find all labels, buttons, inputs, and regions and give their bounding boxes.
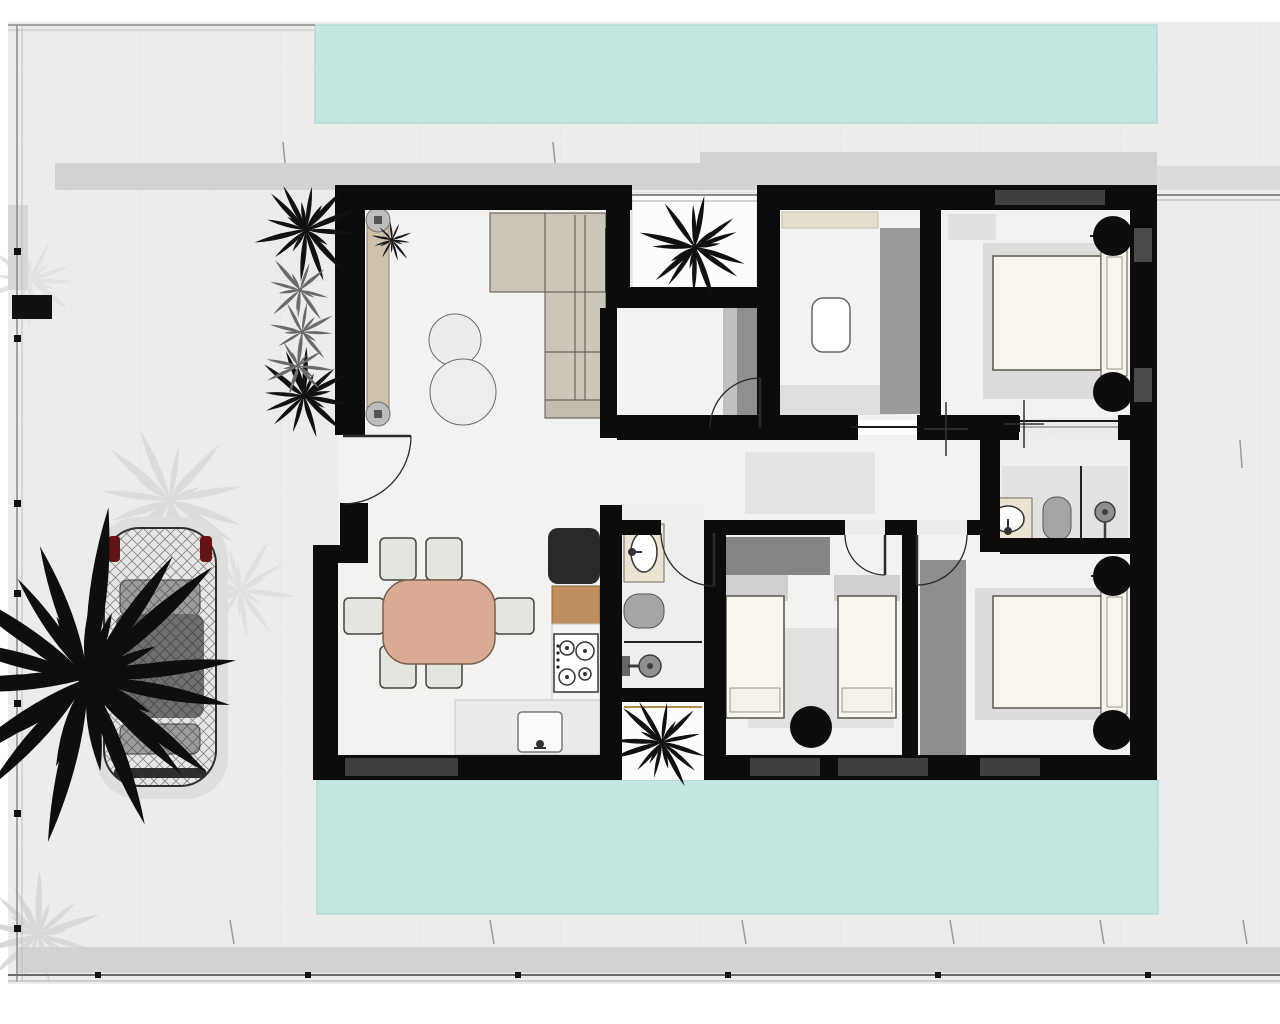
floor-plan-layers xyxy=(0,22,1280,985)
fence-post xyxy=(14,810,21,817)
twin-wardrobe xyxy=(726,537,830,575)
twin-bed-2-foot xyxy=(842,688,892,712)
laundry-shadow xyxy=(765,385,895,415)
fridge xyxy=(548,528,600,584)
stove-knob xyxy=(556,651,559,654)
burner-core xyxy=(583,649,587,653)
pool-top xyxy=(315,25,1157,123)
wall-corridor-top-b xyxy=(917,415,1019,440)
fence-post xyxy=(14,590,21,597)
window-east-b xyxy=(1134,368,1152,402)
wall-bedrooms-top-d xyxy=(967,520,980,535)
nightstand xyxy=(1093,372,1133,412)
burner-core xyxy=(565,646,569,650)
window-master-south xyxy=(980,758,1040,776)
wall-living-hall-lower xyxy=(600,308,617,438)
dining-table xyxy=(383,580,495,664)
wall-living-hall-upper xyxy=(606,210,630,308)
coffee-table-small xyxy=(429,314,481,366)
wall-courtyard-right xyxy=(757,210,780,290)
wall-ensuite-bottom xyxy=(1000,538,1130,554)
sofa-chaise xyxy=(490,213,545,292)
fence-post xyxy=(14,248,21,255)
nightstand xyxy=(1093,556,1133,596)
palm-shadow-bottom-left-trunk xyxy=(34,931,42,939)
console-knob-bottom-core xyxy=(374,410,382,418)
fence-post xyxy=(725,972,731,978)
nightstand xyxy=(790,706,832,748)
master-bed xyxy=(993,596,1101,708)
fence-post xyxy=(14,335,21,342)
wall-bathroom-left xyxy=(600,505,622,702)
washing-machine xyxy=(812,298,850,352)
wall-twin-master xyxy=(902,535,918,755)
dining-chair xyxy=(380,538,416,580)
master-headboard-inner xyxy=(1107,597,1122,707)
wall-west-upper xyxy=(335,210,365,435)
wall-east xyxy=(1130,210,1157,780)
wall-corridor-top-a xyxy=(617,415,858,440)
dining-chair xyxy=(494,598,534,634)
palm-niche-trunk xyxy=(659,739,665,745)
window-twin-south-a xyxy=(750,758,820,776)
wall-west-lower xyxy=(313,560,338,780)
stove-knob xyxy=(556,658,559,661)
window-bedroom1-top xyxy=(995,190,1105,205)
terrace-left-patch xyxy=(8,205,28,290)
lounger-plant-trunk xyxy=(298,288,303,293)
wall-ensuite-left xyxy=(980,440,1000,552)
wall-bedrooms-top-c xyxy=(885,520,917,535)
fence-post xyxy=(515,972,521,978)
coffee-table-large xyxy=(430,359,496,425)
wall-top-west xyxy=(335,185,632,210)
bathroom-faucet xyxy=(628,548,636,556)
fence-post xyxy=(305,972,311,978)
palm-shadow-drive-trunk xyxy=(237,587,244,594)
bedroom1-bed xyxy=(993,256,1101,370)
palm-shadow-carport-trunk xyxy=(166,496,175,505)
corridor-shadow xyxy=(745,452,875,514)
ensuite-faucet xyxy=(1004,527,1012,535)
stove-knob xyxy=(556,665,559,668)
console-sideboard xyxy=(367,226,389,408)
console-plant-trunk xyxy=(390,238,394,242)
burner-core xyxy=(583,672,587,676)
laundry-counter xyxy=(880,228,920,414)
dining-chair xyxy=(426,538,462,580)
lounger-plant-trunk xyxy=(300,330,305,335)
sofa-armrest xyxy=(545,400,606,418)
sliding-rail-block xyxy=(1118,416,1126,432)
twin-bed-1-foot xyxy=(730,688,780,712)
palm-west-bottom-trunk xyxy=(301,393,307,399)
wall-bedrooms-top-b xyxy=(714,520,845,535)
living-room-floor-west xyxy=(338,430,370,755)
palm-courtyard-trunk xyxy=(692,244,699,251)
fence-post xyxy=(14,500,21,507)
wall-laundry-right xyxy=(920,210,941,438)
fence-post xyxy=(935,972,941,978)
bedroom1-headboard-inner xyxy=(1107,257,1122,369)
terrace-top-right xyxy=(700,152,1157,190)
fence-post xyxy=(14,700,21,707)
window-dining-south xyxy=(345,758,458,776)
floor-plan-page xyxy=(0,0,1280,1024)
sink-faucet xyxy=(536,740,544,748)
fence-post xyxy=(95,972,101,978)
master-wardrobe xyxy=(920,560,966,756)
lounger-plant-trunk xyxy=(296,364,300,368)
burner-core xyxy=(565,675,569,679)
fence-post xyxy=(1145,972,1151,978)
cutting-board xyxy=(552,586,600,624)
window-east-a xyxy=(1134,228,1152,262)
floor-plan-svg xyxy=(0,0,1280,1024)
fence-post xyxy=(14,925,21,932)
stove xyxy=(554,634,598,692)
palm-west-top-trunk xyxy=(303,227,310,234)
ensuite-shower-core xyxy=(1102,509,1108,515)
nightstand xyxy=(1093,710,1133,750)
window-twin-south-b xyxy=(838,758,928,776)
console-knob-top-core xyxy=(374,216,382,224)
terrace-right-strip xyxy=(1157,166,1280,190)
wall-west-mid xyxy=(340,503,368,548)
wall-bathroom-bottom xyxy=(600,688,704,702)
palm-carport-large-trunk xyxy=(78,668,98,688)
pool-bottom xyxy=(317,780,1158,914)
fence-gate xyxy=(12,295,52,319)
nightstand xyxy=(1093,216,1133,256)
ensuite-toilet xyxy=(1043,497,1071,540)
terrace-bottom xyxy=(18,947,1280,973)
stove-knob xyxy=(556,644,559,647)
bathroom-toilet xyxy=(624,594,664,628)
bedroom1-shadow xyxy=(948,214,996,240)
dining-chair xyxy=(344,598,384,634)
bathroom-shower-core xyxy=(647,663,653,669)
laundry-shelf xyxy=(782,212,878,228)
